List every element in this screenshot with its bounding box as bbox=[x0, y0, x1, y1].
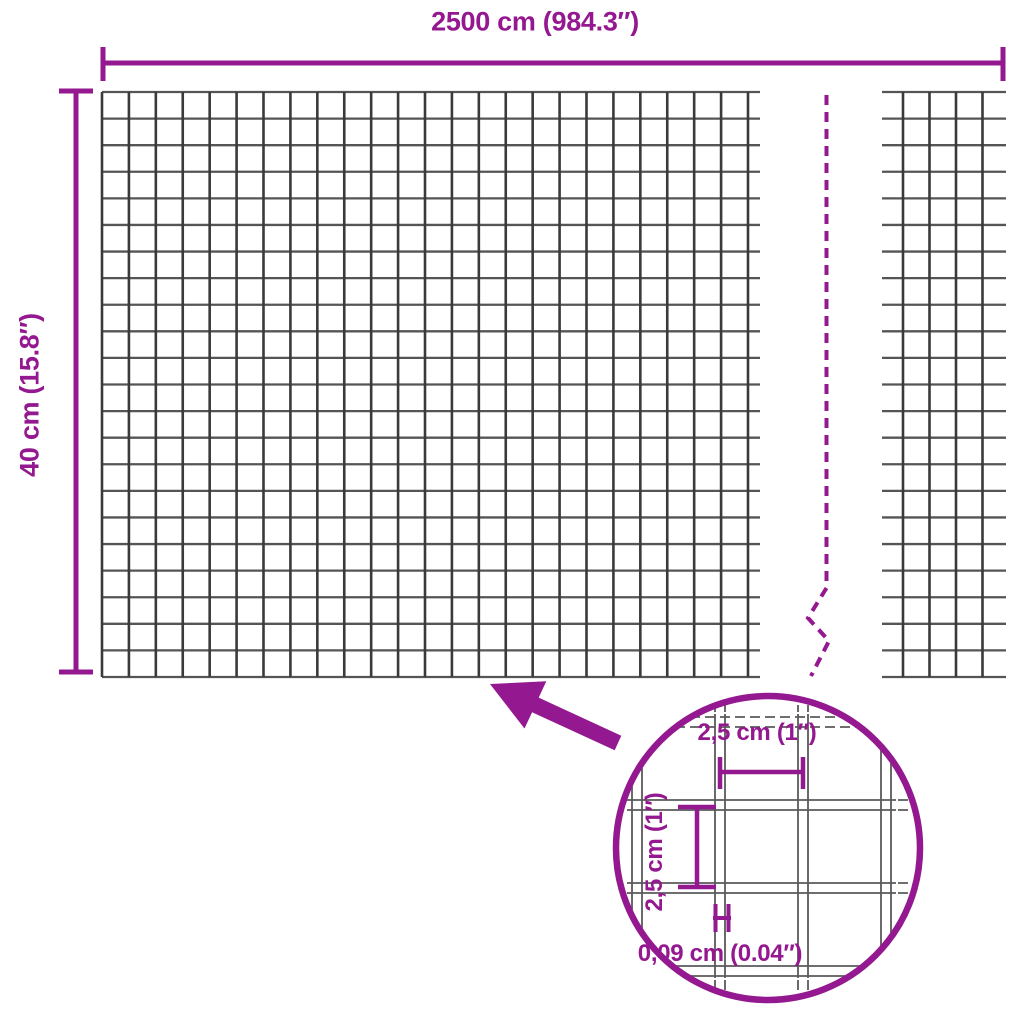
width-dimension-line bbox=[103, 47, 1003, 81]
mesh-grid-main bbox=[102, 92, 760, 677]
zoom-arrow-icon bbox=[490, 681, 621, 750]
detail-cell-width-label: 2,5 cm (1″) bbox=[698, 719, 817, 747]
detail-cell-height-label: 2,5 cm (1″) bbox=[641, 793, 669, 912]
height-dimension-label: 40 cm (15.8″) bbox=[15, 313, 46, 477]
detail-mesh bbox=[580, 660, 958, 1024]
break-line bbox=[808, 95, 829, 676]
wire-mesh-dimension-diagram: 2500 cm (984.3″) 40 cm (15.8″) 2,5 cm (1… bbox=[0, 0, 1024, 1024]
detail-dimension-lines bbox=[678, 757, 803, 932]
diagram-canvas bbox=[0, 0, 1024, 1024]
width-dimension-label: 2500 cm (984.3″) bbox=[431, 7, 639, 38]
detail-wire-thickness-label: 0,09 cm (0.04″) bbox=[638, 940, 802, 968]
mesh-grid-end bbox=[882, 92, 1006, 677]
height-dimension-line bbox=[59, 91, 93, 672]
